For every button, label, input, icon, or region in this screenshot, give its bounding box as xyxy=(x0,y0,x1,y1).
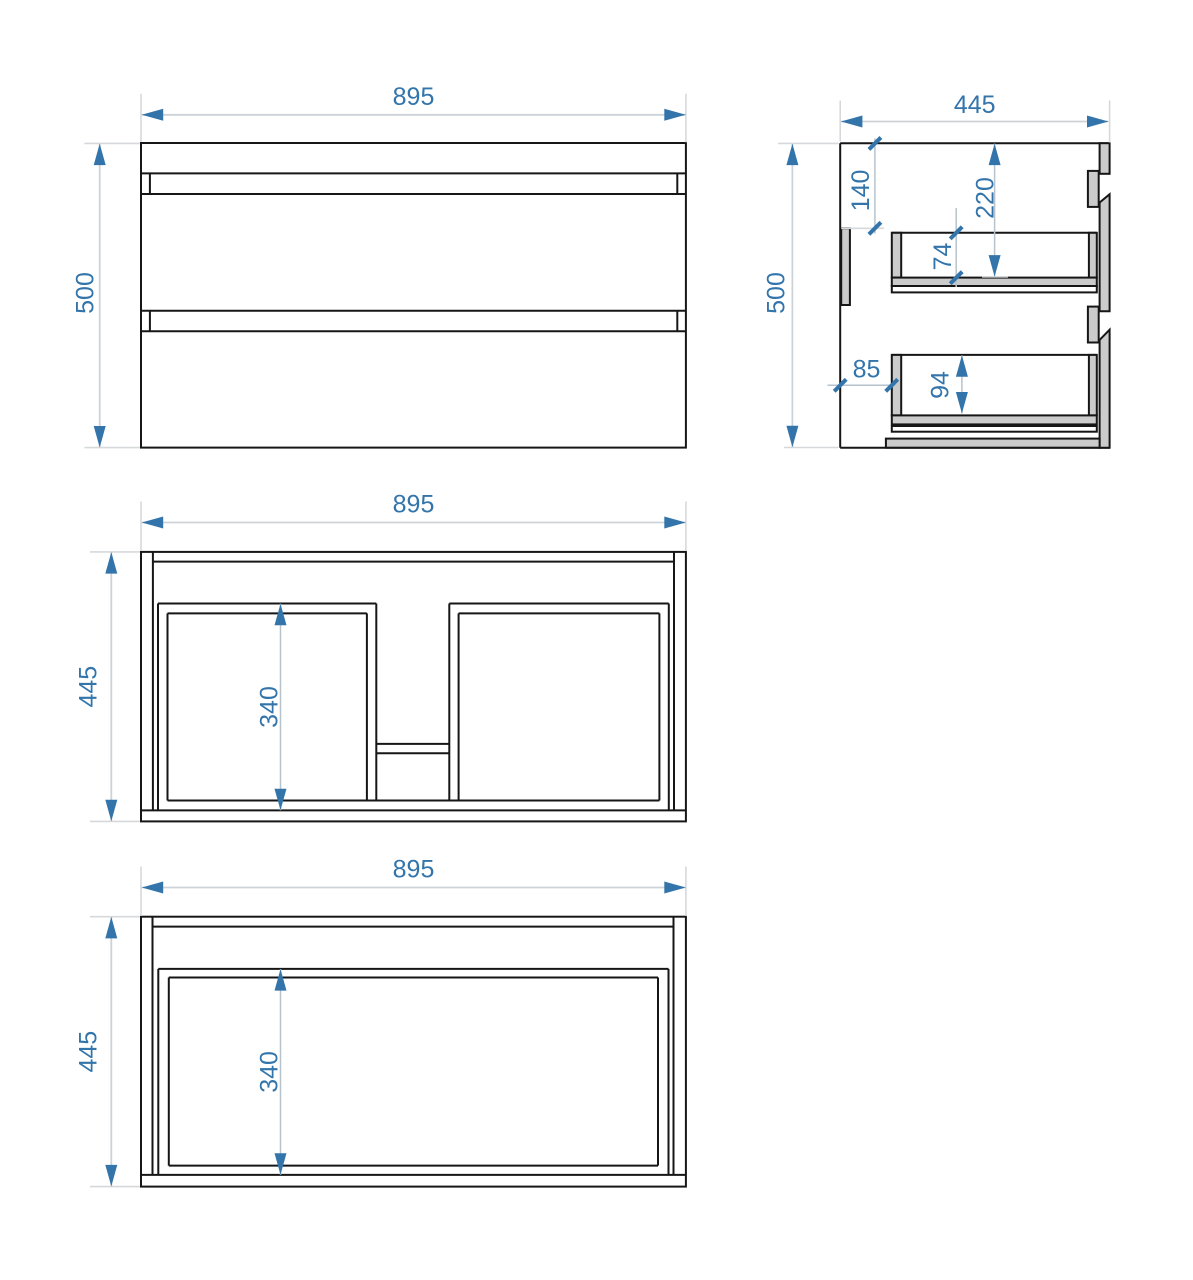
svg-text:220: 220 xyxy=(972,177,1000,219)
svg-text:85: 85 xyxy=(853,356,881,384)
svg-text:445: 445 xyxy=(75,1031,103,1073)
svg-text:445: 445 xyxy=(75,666,103,708)
svg-text:94: 94 xyxy=(927,371,955,399)
svg-text:895: 895 xyxy=(393,83,435,111)
svg-text:140: 140 xyxy=(847,170,875,212)
svg-text:895: 895 xyxy=(393,855,435,883)
svg-text:340: 340 xyxy=(256,686,284,728)
svg-text:895: 895 xyxy=(393,490,435,518)
svg-text:74: 74 xyxy=(929,243,957,271)
svg-text:500: 500 xyxy=(72,272,100,314)
svg-text:500: 500 xyxy=(763,272,791,314)
svg-text:445: 445 xyxy=(954,91,996,119)
svg-text:340: 340 xyxy=(256,1051,284,1093)
